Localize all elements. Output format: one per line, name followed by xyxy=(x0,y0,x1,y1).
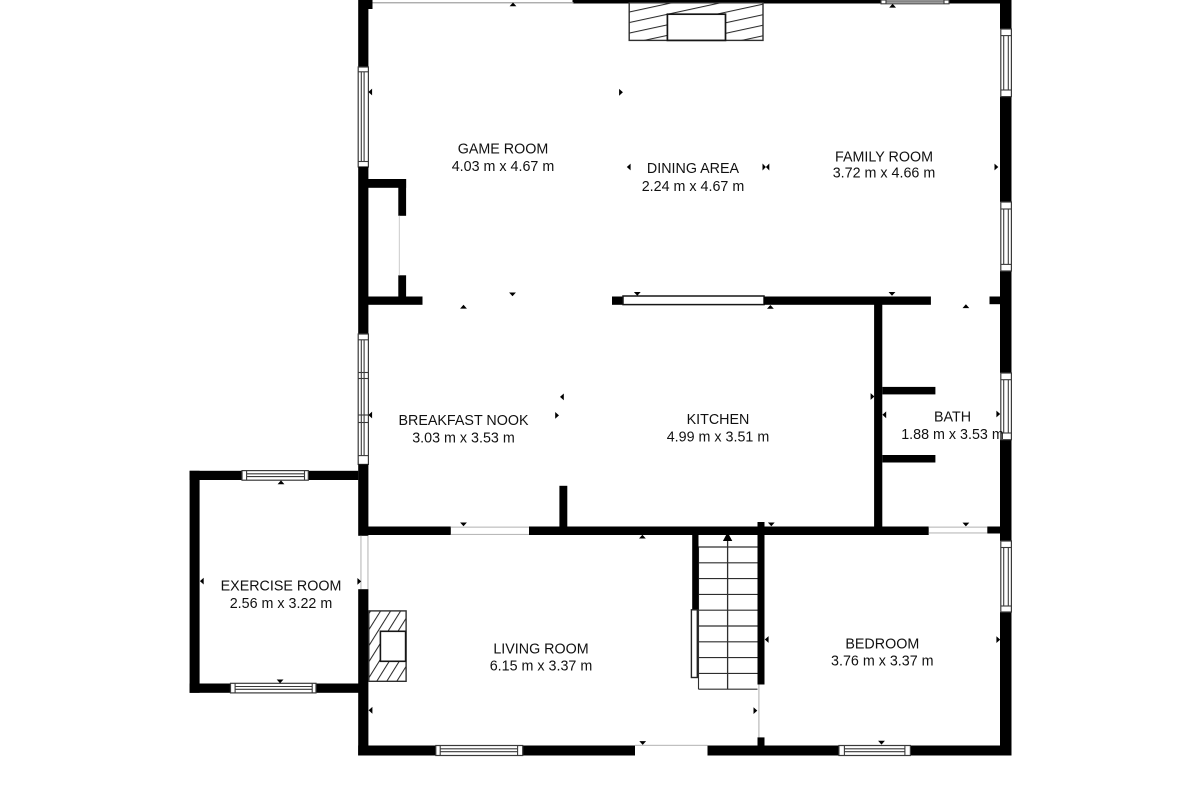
svg-text:3.76 m x 3.37 m: 3.76 m x 3.37 m xyxy=(831,654,934,670)
svg-text:FAMILY ROOM: FAMILY ROOM xyxy=(835,149,933,165)
svg-text:BATH: BATH xyxy=(934,410,971,426)
svg-text:KITCHEN: KITCHEN xyxy=(687,412,750,428)
svg-text:1.88 m x 3.53 m: 1.88 m x 3.53 m xyxy=(901,427,1004,443)
svg-text:3.03 m x 3.53 m: 3.03 m x 3.53 m xyxy=(412,430,515,446)
svg-text:3.72 m x 4.66 m: 3.72 m x 4.66 m xyxy=(833,165,936,181)
svg-text:BREAKFAST NOOK: BREAKFAST NOOK xyxy=(398,413,528,429)
svg-text:LIVING ROOM: LIVING ROOM xyxy=(493,641,588,657)
svg-text:EXERCISE ROOM: EXERCISE ROOM xyxy=(221,578,342,594)
svg-text:6.15 m x 3.37 m: 6.15 m x 3.37 m xyxy=(490,659,593,675)
svg-text:DINING AREA: DINING AREA xyxy=(647,161,740,177)
svg-text:BEDROOM: BEDROOM xyxy=(845,636,919,652)
svg-text:2.56 m x 3.22 m: 2.56 m x 3.22 m xyxy=(230,596,333,612)
svg-text:GAME ROOM: GAME ROOM xyxy=(458,141,549,157)
svg-text:4.03 m x 4.67 m: 4.03 m x 4.67 m xyxy=(452,159,555,175)
svg-text:4.99 m x 3.51 m: 4.99 m x 3.51 m xyxy=(667,429,770,445)
svg-text:2.24 m x 4.67 m: 2.24 m x 4.67 m xyxy=(642,179,745,195)
